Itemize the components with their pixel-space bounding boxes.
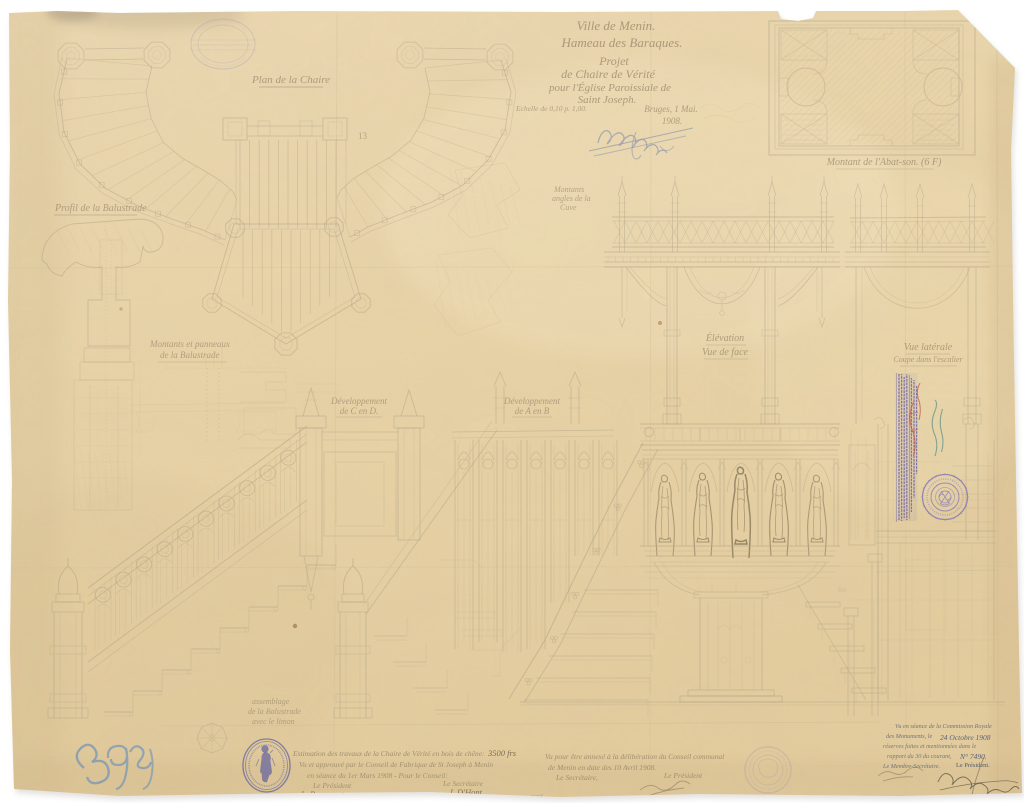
svg-text:3500 frs: 3500 frs (487, 748, 517, 758)
svg-text:de C en D.: de C en D. (340, 406, 379, 416)
svg-text:Vu et approuvé par le Conseil: Vu et approuvé par le Conseil de Fabriqu… (299, 760, 493, 769)
svg-text:angles de la: angles de la (552, 194, 591, 203)
svg-text:13: 13 (358, 131, 368, 141)
svg-text:Projet: Projet (598, 54, 629, 68)
svg-text:réserves faites et mentionnées: réserves faites et mentionnées dans le (883, 743, 977, 750)
svg-text:Le Membre-Secrétaire.: Le Membre-Secrétaire. (882, 763, 940, 770)
svg-text:de Menin en date des 10 Avril: de Menin en date des 10 Avril 1908. (548, 763, 656, 772)
svg-text:pour l'Église Paroissiale de: pour l'Église Paroissiale de (548, 82, 671, 94)
svg-text:Ville de Menin.: Ville de Menin. (577, 18, 656, 33)
svg-text:Cuve: Cuve (560, 203, 577, 212)
svg-text:Le Président: Le Président (663, 771, 703, 780)
svg-text:Plan de la Chaire: Plan de la Chaire (251, 74, 330, 86)
svg-text:Profil de la Balustrade: Profil de la Balustrade (54, 203, 147, 214)
svg-text:Montants: Montants (553, 185, 584, 194)
svg-text:Estimation des travaux de la C: Estimation des travaux de la Chaire de V… (292, 749, 485, 758)
svg-text:en séance du 1er Mars 1908 - P: en séance du 1er Mars 1908 - Pour le Con… (307, 771, 448, 780)
svg-text:Echelle de 0,10 p. 1,00.: Echelle de 0,10 p. 1,00. (515, 104, 587, 113)
svg-text:Vu en séance de la Commission: Vu en séance de la Commission Royale (895, 723, 992, 730)
svg-text:6o: 6o (838, 585, 846, 594)
svg-text:1908.: 1908. (662, 116, 682, 126)
svg-text:Montants et panneaux: Montants et panneaux (149, 339, 230, 349)
svg-text:Montant de l'Abat-son. (6 F): Montant de l'Abat-son. (6 F) (826, 157, 942, 168)
svg-text:avec le limon: avec le limon (252, 717, 295, 726)
svg-text:Bruges, 1 Mai.: Bruges, 1 Mai. (644, 104, 698, 114)
svg-text:Hameau des Baraques.: Hameau des Baraques. (561, 35, 683, 50)
svg-text:rapport du 30 du courant,: rapport du 30 du courant, (887, 753, 952, 760)
svg-text:de A en B: de A en B (515, 406, 550, 416)
svg-text:Vu pour être annexé à la délib: Vu pour être annexé à la délibération du… (545, 752, 724, 761)
svg-text:Coupe dans l'escalier: Coupe dans l'escalier (893, 355, 963, 364)
svg-text:de Chaire de Vérité: de Chaire de Vérité (561, 67, 656, 81)
svg-text:des Monuments, le: des Monuments, le (886, 733, 932, 740)
svg-text:de la Balustrade: de la Balustrade (248, 707, 301, 716)
svg-text:Vue de face: Vue de face (702, 347, 748, 358)
svg-text:24 Octobre 1908: 24 Octobre 1908 (940, 733, 991, 742)
svg-text:Le Secrétaire,: Le Secrétaire, (555, 773, 598, 782)
svg-text:Vue latérale: Vue latérale (904, 342, 953, 353)
svg-text:Développement: Développement (330, 396, 387, 406)
svg-text:Le Président.: Le Président. (956, 762, 990, 769)
svg-text:assemblage: assemblage (252, 697, 290, 706)
svg-text:Élévation: Élévation (705, 332, 744, 344)
svg-text:Développement: Développement (503, 396, 560, 406)
svg-text:de la Balustrade: de la Balustrade (160, 350, 220, 360)
